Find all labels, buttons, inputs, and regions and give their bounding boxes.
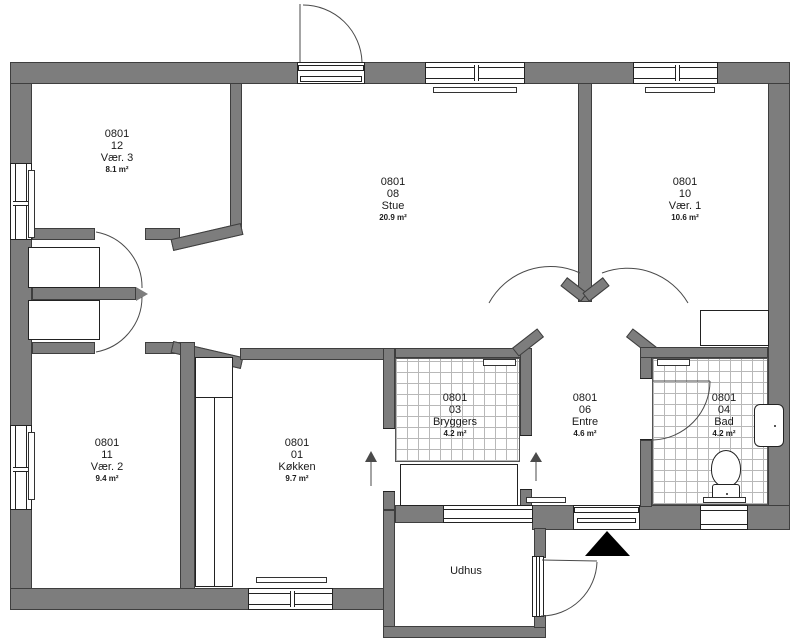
window-glass bbox=[444, 509, 532, 519]
room-label-vaer3: 0801 12 Vær. 3 8.1 m² bbox=[101, 128, 133, 175]
room-name: Udhus bbox=[450, 565, 482, 577]
window-divider bbox=[290, 591, 295, 607]
wall-udhus-bottom bbox=[383, 626, 546, 638]
threshold-line bbox=[300, 76, 362, 82]
room-name: Køkken bbox=[278, 461, 315, 473]
wall-hall-stub bbox=[32, 287, 136, 300]
udhus-door-arc bbox=[541, 562, 597, 616]
room-label-koekken: 0801 01 Køkken 9.7 m² bbox=[278, 437, 315, 484]
room-number: 12 bbox=[101, 140, 133, 152]
room-label-entre: 0801 06 Entre 4.6 m² bbox=[572, 392, 598, 439]
wall-exterior-bottom-left bbox=[10, 588, 395, 610]
property-id: 0801 bbox=[433, 392, 477, 404]
hall-wardrobe-lower bbox=[28, 300, 100, 340]
wall-vaer2-koekken bbox=[180, 342, 195, 589]
hall-wardrobe-upper bbox=[28, 247, 100, 288]
wall-stue-koekken bbox=[240, 348, 395, 360]
room-label-vaer2: 0801 11 Vær. 2 9.4 m² bbox=[91, 437, 123, 484]
window-glass bbox=[701, 510, 747, 525]
wall-hall-stub-tip bbox=[136, 287, 148, 301]
room-name: Vær. 3 bbox=[101, 152, 133, 164]
property-id: 0801 bbox=[101, 128, 133, 140]
vaer3-door-arc bbox=[96, 232, 142, 288]
wall-bryggers-north bbox=[395, 348, 525, 358]
entrance-door-threshold bbox=[573, 505, 640, 530]
window-divider bbox=[13, 201, 29, 206]
radiator bbox=[28, 432, 35, 500]
property-id: 0801 bbox=[379, 176, 407, 188]
kitchen-appliance bbox=[195, 357, 233, 398]
window-top-middle bbox=[425, 62, 525, 84]
radiator bbox=[483, 359, 516, 366]
terrace-door-threshold bbox=[297, 62, 365, 84]
wall-stue-vaer1 bbox=[578, 83, 592, 302]
bad-tile-floor bbox=[652, 358, 768, 505]
room-number: 10 bbox=[669, 188, 701, 200]
window-divider bbox=[675, 65, 680, 81]
toilet-flush bbox=[726, 493, 728, 495]
wall-vaer2-top-a bbox=[32, 342, 95, 354]
counter-divider bbox=[214, 398, 215, 586]
vaer2-door-arc bbox=[96, 297, 142, 352]
room-area: 10.6 m² bbox=[669, 212, 701, 223]
room-label-bad: 0801 04 Bad 4.2 m² bbox=[712, 392, 736, 439]
toilet-bowl bbox=[711, 450, 741, 487]
room-number: 08 bbox=[379, 188, 407, 200]
kitchen-counter bbox=[195, 397, 233, 587]
property-id: 0801 bbox=[669, 176, 701, 188]
property-id: 0801 bbox=[572, 392, 598, 404]
wall-udhus-left bbox=[383, 510, 395, 638]
window-divider bbox=[474, 65, 479, 81]
radiator bbox=[28, 170, 35, 238]
room-number: 04 bbox=[712, 404, 736, 416]
step-arrow-koekken-head bbox=[365, 451, 377, 462]
window-top-right bbox=[633, 62, 718, 84]
radiator bbox=[703, 497, 746, 503]
room-area: 8.1 m² bbox=[101, 164, 133, 175]
wall-bad-west-lower bbox=[640, 440, 652, 507]
doorway-entre-bryggers bbox=[520, 435, 532, 490]
room-number: 06 bbox=[572, 404, 598, 416]
room-name: Vær. 2 bbox=[91, 461, 123, 473]
property-id: 0801 bbox=[712, 392, 736, 404]
room-name: Bryggers bbox=[433, 416, 477, 428]
radiator bbox=[657, 359, 690, 366]
room-label-udhus: Udhus bbox=[450, 565, 482, 577]
room-number: 03 bbox=[433, 404, 477, 416]
wall-bad-north bbox=[640, 347, 768, 358]
door-frame-lines bbox=[536, 557, 540, 616]
wall-exterior-right bbox=[768, 83, 790, 530]
doorway-koekken-bryggers bbox=[383, 428, 395, 492]
room-number: 01 bbox=[278, 449, 315, 461]
room-area: 9.7 m² bbox=[278, 473, 315, 484]
window-divider bbox=[13, 467, 29, 472]
room-name: Stue bbox=[379, 200, 407, 212]
entrance-marker-icon bbox=[585, 531, 630, 556]
radiator bbox=[433, 87, 517, 93]
room-area: 4.2 m² bbox=[433, 428, 477, 439]
room-label-bryggers: 0801 03 Bryggers 4.2 m² bbox=[433, 392, 477, 439]
bryggers-appliance bbox=[400, 464, 518, 506]
window-bad bbox=[700, 505, 748, 530]
room-area: 4.2 m² bbox=[712, 428, 736, 439]
radiator bbox=[526, 497, 566, 503]
room-name: Entre bbox=[572, 416, 598, 428]
window-kitchen bbox=[248, 588, 333, 610]
doorway-entre-bad bbox=[640, 378, 652, 440]
sink-drain bbox=[774, 425, 776, 427]
window-bryggers-udhus bbox=[443, 505, 533, 523]
property-id: 0801 bbox=[278, 437, 315, 449]
room-area: 4.6 m² bbox=[572, 428, 598, 439]
symbol-overlay bbox=[0, 0, 800, 638]
terrace-door-arc bbox=[303, 5, 362, 62]
radiator bbox=[645, 87, 715, 93]
vaer1-dresser bbox=[700, 310, 769, 346]
udhus-door-leaf bbox=[542, 560, 597, 561]
room-area: 20.9 m² bbox=[379, 212, 407, 223]
floor-plan: 0801 12 Vær. 3 8.1 m² 0801 08 Stue 20.9 … bbox=[0, 0, 800, 638]
room-name: Vær. 1 bbox=[669, 200, 701, 212]
udhus-door-frame bbox=[532, 556, 544, 617]
wall-vaer3-bottom-a bbox=[32, 228, 95, 240]
threshold-line bbox=[298, 65, 364, 71]
wall-bad-west-upper bbox=[640, 357, 652, 379]
property-id: 0801 bbox=[91, 437, 123, 449]
wall-reveal-upper bbox=[171, 223, 244, 251]
room-label-stue: 0801 08 Stue 20.9 m² bbox=[379, 176, 407, 223]
room-area: 9.4 m² bbox=[91, 473, 123, 484]
wall-udhus-right-upper bbox=[534, 528, 546, 558]
bathroom-sink bbox=[754, 404, 784, 447]
room-number: 11 bbox=[91, 449, 123, 461]
threshold-line bbox=[574, 507, 639, 513]
entre-door-right-arc bbox=[602, 268, 688, 303]
wall-exterior-bottom-right bbox=[532, 505, 790, 530]
room-label-vaer1: 0801 10 Vær. 1 10.6 m² bbox=[669, 176, 701, 223]
room-name: Bad bbox=[712, 416, 736, 428]
radiator bbox=[256, 577, 327, 583]
threshold-line bbox=[577, 518, 636, 523]
wall-vaer3-stue bbox=[230, 83, 242, 228]
